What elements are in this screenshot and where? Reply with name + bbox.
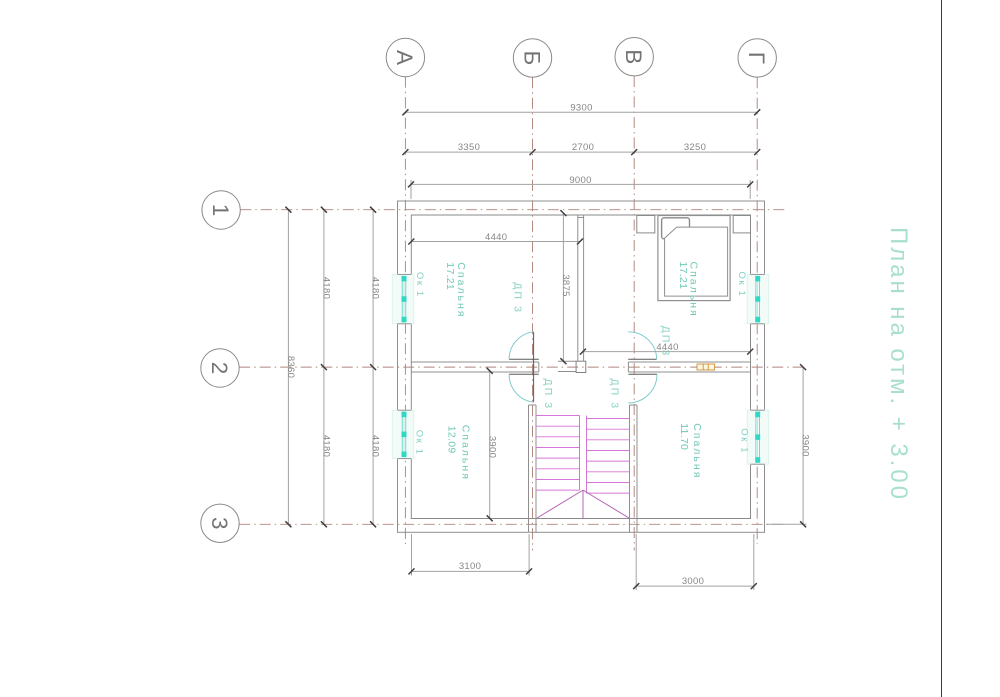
svg-text:2700: 2700 [572,142,594,153]
svg-text:4180: 4180 [321,435,332,457]
svg-text:ДП 3: ДП 3 [542,378,554,410]
svg-text:А: А [392,50,417,65]
svg-text:Ок 1: Ок 1 [736,272,747,298]
svg-text:В: В [621,49,646,64]
svg-text:ДП 3: ДП 3 [659,326,671,358]
svg-text:1: 1 [208,204,233,217]
svg-text:9000: 9000 [569,175,591,186]
svg-text:4180: 4180 [370,277,381,299]
svg-text:Г: Г [744,52,769,64]
svg-text:9300: 9300 [570,102,592,113]
svg-text:17.21: 17.21 [677,262,689,290]
svg-text:3: 3 [207,517,232,530]
svg-text:3875: 3875 [560,274,571,296]
svg-text:3000: 3000 [682,576,704,587]
svg-text:Спальня: Спальня [691,423,703,479]
svg-text:4440: 4440 [485,232,507,243]
svg-text:3350: 3350 [458,142,480,153]
svg-text:4180: 4180 [370,435,381,457]
svg-text:Б: Б [519,51,544,66]
svg-text:12.09: 12.09 [446,426,458,454]
svg-text:ДП 3: ДП 3 [608,378,620,410]
svg-text:Ок 1: Ок 1 [414,272,425,298]
svg-text:3900: 3900 [486,436,497,458]
svg-text:8360: 8360 [285,356,296,378]
svg-text:ДП 3: ДП 3 [511,282,523,314]
svg-text:11.70: 11.70 [678,423,690,450]
svg-text:17.21: 17.21 [444,262,456,290]
svg-text:Ок 1: Ок 1 [738,428,749,454]
svg-text:2: 2 [207,362,232,375]
svg-text:Ок 1: Ок 1 [413,430,424,456]
svg-text:План на отм. + 3.00: План на отм. + 3.00 [885,227,912,502]
svg-text:Спальня: Спальня [460,425,472,481]
svg-text:Спальня: Спальня [455,262,467,318]
svg-text:4180: 4180 [321,277,332,299]
svg-text:3900: 3900 [800,434,811,456]
svg-text:3250: 3250 [684,142,706,153]
svg-text:3100: 3100 [459,561,481,572]
